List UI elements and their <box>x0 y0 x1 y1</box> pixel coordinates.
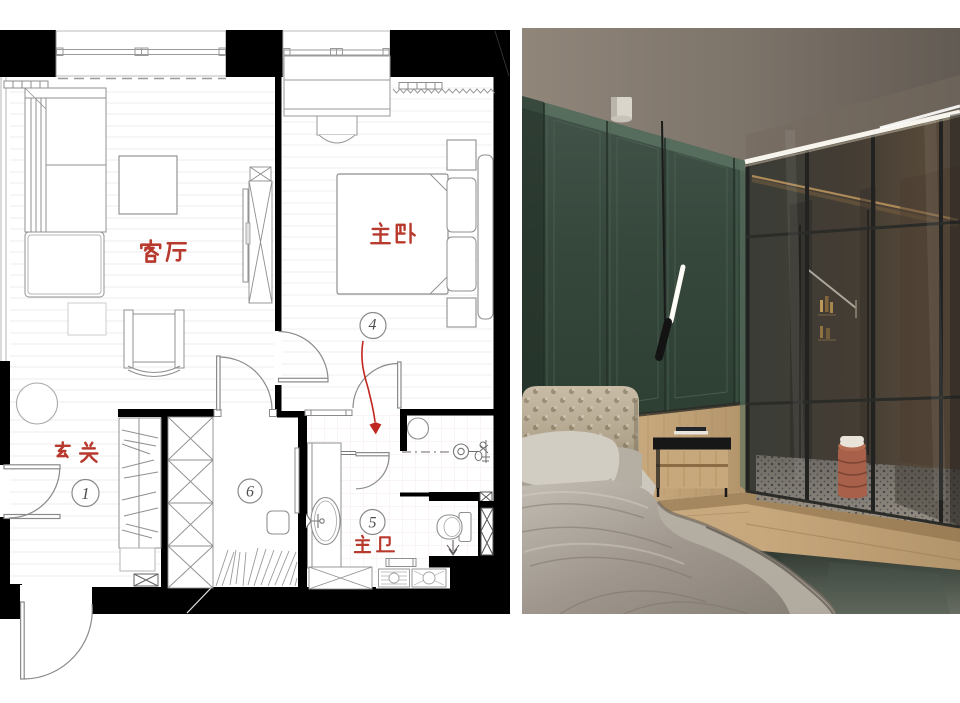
svg-text:6: 6 <box>246 484 254 501</box>
svg-text:4: 4 <box>369 317 377 334</box>
svg-text:1: 1 <box>81 484 90 503</box>
svg-text:5: 5 <box>369 515 377 532</box>
